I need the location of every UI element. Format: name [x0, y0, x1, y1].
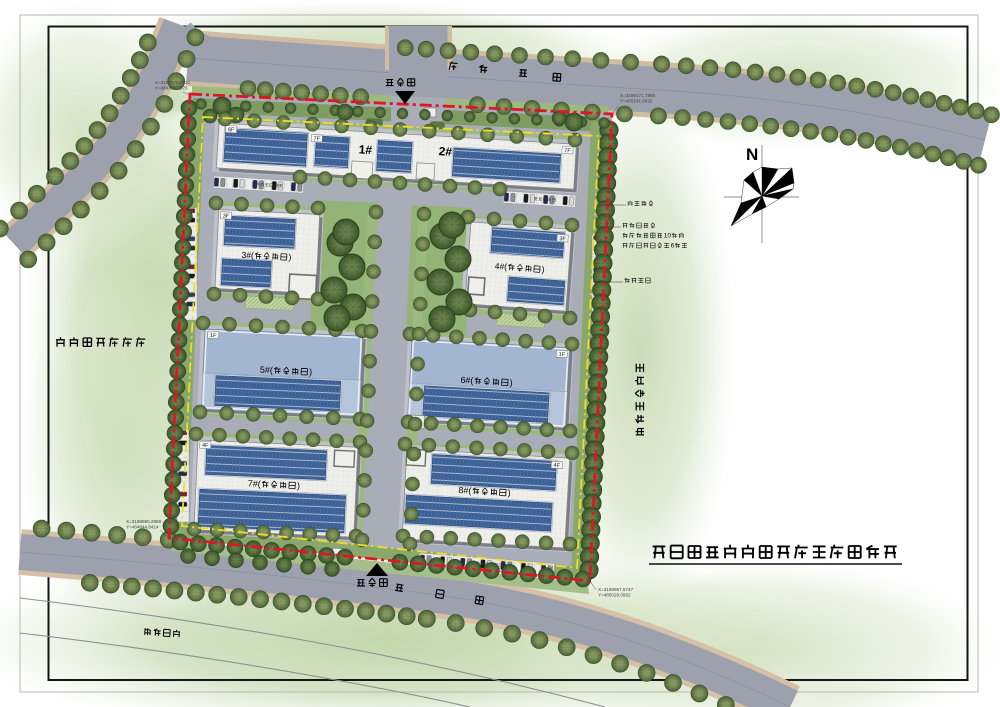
svg-text:4#(: 4#( [494, 261, 507, 272]
svg-text:Y=485029.0952: Y=485029.0952 [598, 593, 631, 598]
svg-text:2#: 2# [438, 144, 452, 159]
svg-text:7F: 7F [313, 136, 320, 142]
svg-text:): ) [507, 488, 511, 498]
svg-text:Y=484844.8414: Y=484844.8414 [126, 525, 159, 530]
svg-text:1#: 1# [358, 142, 372, 157]
svg-text:): ) [309, 367, 312, 377]
svg-text:3F: 3F [223, 213, 230, 219]
svg-text:7F: 7F [564, 148, 571, 154]
svg-text:6: 6 [671, 243, 675, 250]
svg-text:X=3199178.4721: X=3199178.4721 [155, 80, 191, 85]
svg-text:5#(: 5#( [260, 365, 273, 376]
svg-text:Y=485241.6432: Y=485241.6432 [620, 99, 653, 104]
svg-text:7#(: 7#( [248, 478, 261, 489]
svg-text:N: N [746, 145, 758, 164]
svg-text:X=3198985.2886: X=3198985.2886 [126, 519, 162, 524]
svg-text:): ) [297, 481, 300, 491]
svg-text:3#(: 3#( [241, 250, 254, 261]
svg-text:4F: 4F [202, 443, 209, 449]
svg-text:6F: 6F [228, 127, 235, 133]
svg-text:1F: 1F [210, 333, 217, 339]
svg-text:8#(: 8#( [458, 485, 472, 496]
svg-text:14: 14 [274, 183, 280, 188]
svg-text:): ) [509, 378, 513, 388]
svg-text:X=3199171.7866: X=3199171.7866 [620, 93, 656, 98]
svg-text:6#(: 6#( [460, 375, 474, 386]
svg-text:X=3198957.5747: X=3198957.5747 [598, 587, 634, 592]
svg-text:1F: 1F [558, 352, 565, 358]
svg-text:4F: 4F [553, 463, 560, 469]
svg-text:10: 10 [664, 233, 672, 240]
svg-text:Y=484856.1576: Y=484856.1576 [155, 86, 188, 91]
svg-text:3F: 3F [559, 236, 566, 243]
svg-text:26: 26 [498, 562, 504, 567]
